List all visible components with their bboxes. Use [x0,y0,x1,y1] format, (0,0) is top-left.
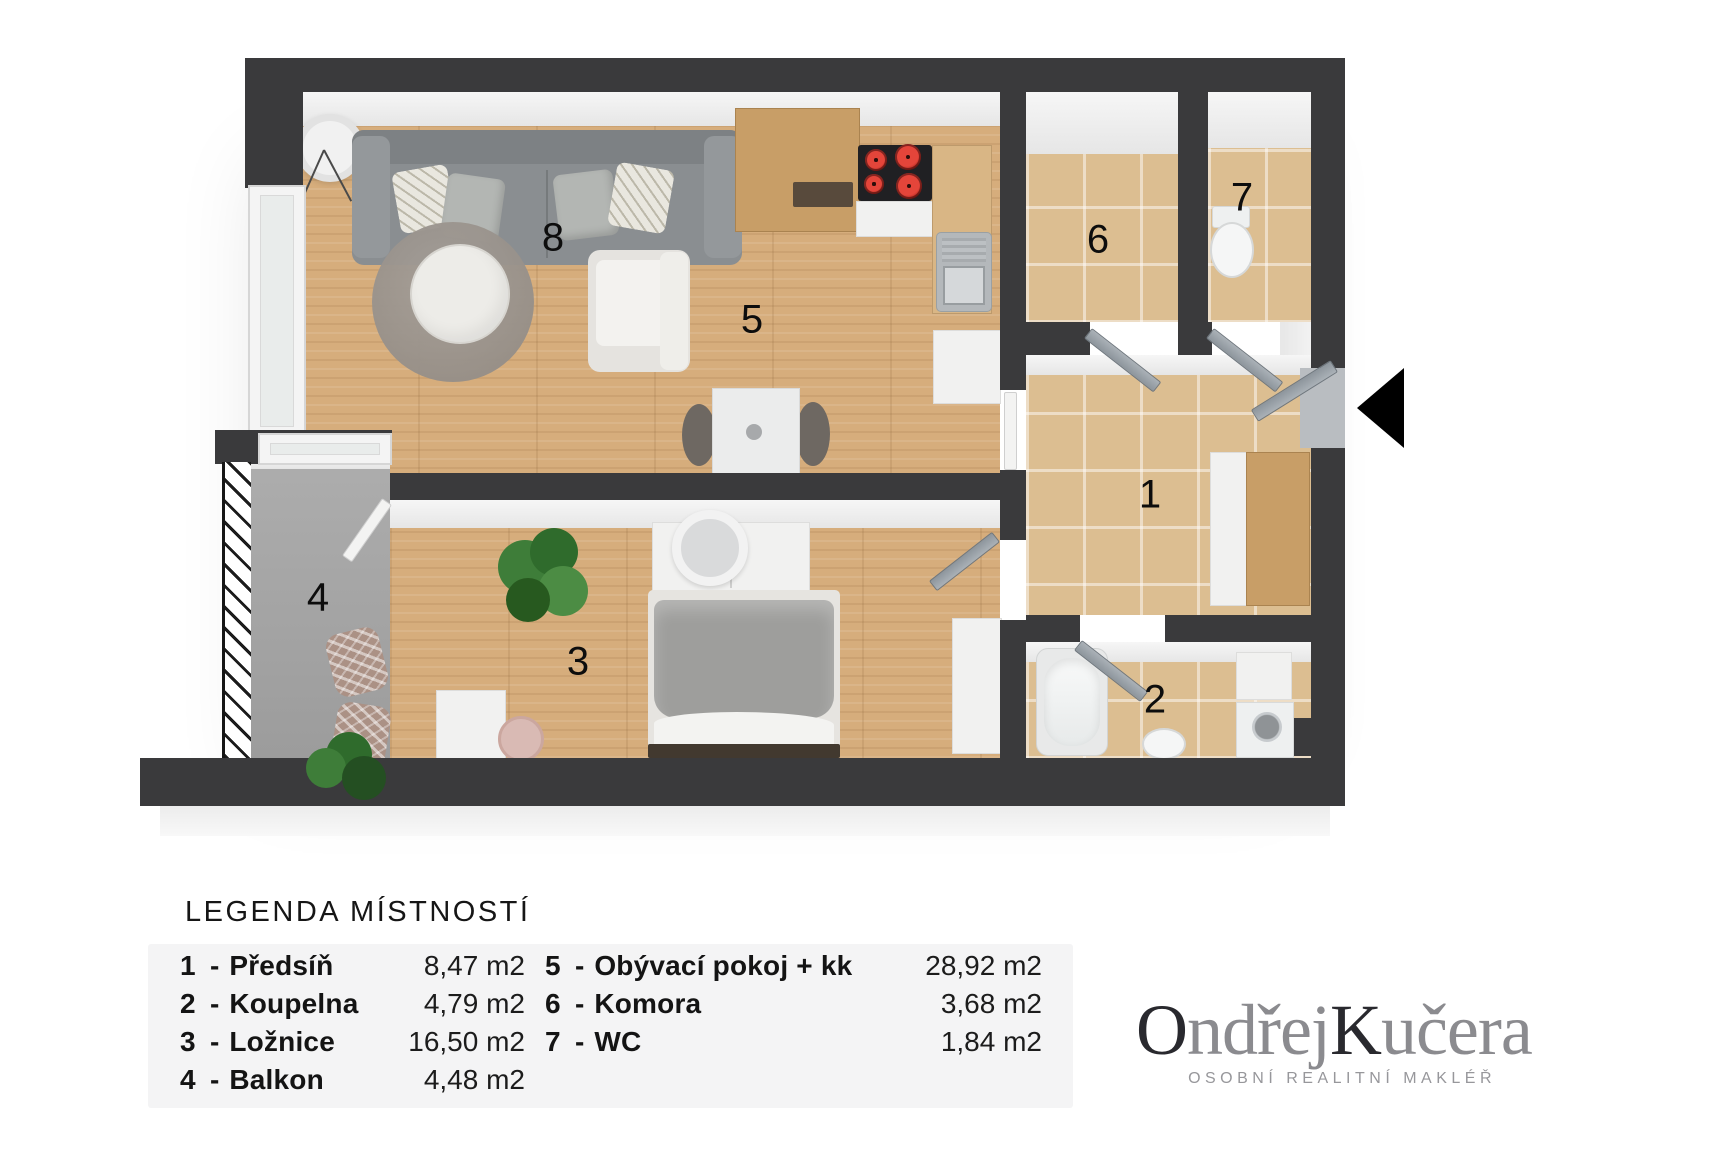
room-label-wc: 7 [1231,176,1253,221]
legend-separator: - [210,1026,219,1058]
legend-separator: - [575,950,584,982]
kitchen-base-cabinet [856,201,934,237]
legend-room-name: Komora [594,988,701,1020]
legend-room-number: 7 [545,1026,565,1058]
window-glass [270,443,380,455]
room-label-sofa: 8 [542,216,564,261]
wall-storage-hall-a [1026,322,1090,355]
plant-foliage [506,578,550,622]
wall-face [1026,92,1178,154]
legend-room-name: WC [594,1026,641,1058]
desk-chair [498,716,544,762]
wall-face [1208,92,1311,148]
wall-living-bedroom [390,473,1002,500]
legend-room-name: Obývací pokoj + kk [594,950,852,982]
legend-room-area: 8,47 m2 [424,950,525,982]
legend-separator: - [575,1026,584,1058]
legend-room-name: Předsíň [229,950,333,982]
room-label-hallway: 1 [1139,473,1161,518]
dining-chair [796,402,830,466]
bathroom-toilet [1142,728,1186,760]
legend-room-number: 2 [180,988,200,1020]
plant-foliage [342,756,386,800]
legend-row: 4 - Balkon 4,48 m2 [180,1064,525,1102]
legend-room-area: 28,92 m2 [925,950,1042,982]
wall-storage-wc [1178,92,1208,322]
legend-room-name: Ložnice [229,1026,335,1058]
legend-room-name: Koupelna [229,988,358,1020]
table-vase [746,424,762,440]
legend-room-number: 5 [545,950,565,982]
legend-room-number: 1 [180,950,200,982]
wall-hall-bath-a [1026,615,1080,642]
sink-drainboard [942,238,986,262]
legend-separator: - [210,988,219,1020]
brand-name-initial: K [1330,990,1381,1070]
living-cabinet [933,330,1001,404]
balcony-plant [306,732,402,804]
cooktop-burner [895,144,921,170]
brand-name-initial: O [1136,990,1187,1070]
sofa-armrest [352,136,390,258]
coffee-table [410,244,510,344]
brand-name: OndřejKučera [1136,994,1496,1066]
kitchen-tall-cabinet [735,108,860,232]
brand-name-rest: ndřej [1187,990,1330,1070]
bed-duvet [654,600,834,718]
legend-row: 1 - Předsíň 8,47 m2 [180,950,525,988]
legend-row: 3 - Ložnice 16,50 m2 [180,1026,525,1064]
room-label-living-room: 5 [741,298,763,343]
brand-logo: OndřejKučera OSOBNÍ REALITNÍ MAKLÉŘ [1136,994,1496,1088]
washing-machine [1236,702,1294,758]
cooktop-burner [865,149,887,171]
oven [793,182,853,207]
legend-room-area: 4,48 m2 [424,1064,525,1096]
kitchen-sink [936,232,992,312]
legend-row: 2 - Koupelna 4,79 m2 [180,988,525,1026]
legend-separator: - [575,988,584,1020]
brand-tagline: OSOBNÍ REALITNÍ MAKLÉŘ [1136,1070,1496,1088]
hallway-wardrobe-top [1246,452,1310,606]
building-base [160,806,1330,836]
round-mirror [672,510,748,586]
room-label-bedroom: 3 [567,640,589,685]
sofa-pillow [607,161,675,234]
wall-core-upper [1000,92,1026,390]
floorplan-page: 1 2 3 4 5 6 7 8 LEGENDA MÍSTNOSTÍ 1 - Př… [0,0,1732,1157]
balcony-railing [222,462,251,758]
wall-right-upper [1311,92,1345,368]
cooktop-burner [864,174,884,194]
living-room-window [248,185,306,437]
bed-headboard [648,744,840,758]
wall-right-lower [1311,448,1345,758]
balcony-window [258,433,392,465]
bedroom-wardrobe [952,618,1002,754]
entrance-arrow-icon [1357,368,1404,448]
legend-row: 6 - Komora 3,68 m2 [545,988,1042,1026]
cooktop-burner [896,173,922,199]
sofa-backrest [352,130,742,164]
room-label-storage: 6 [1087,218,1109,263]
wall-left-top [245,58,303,188]
room-label-balcony: 4 [307,576,329,621]
bathroom-cabinet [1236,652,1292,700]
dining-chair [682,404,716,466]
legend-title: LEGENDA MÍSTNOSTÍ [185,896,530,929]
wall-core-lower [1000,620,1026,758]
legend-row: 5 - Obývací pokoj + kk 28,92 m2 [545,950,1042,988]
living-room-door [1004,392,1017,470]
legend-column-1: 1 - Předsíň 8,47 m2 2 - Koupelna 4,79 m2… [180,950,525,1102]
brand-name-rest: učera [1381,990,1532,1070]
legend-room-number: 6 [545,988,565,1020]
legend-room-area: 16,50 m2 [408,1026,525,1058]
window-glass [260,195,294,427]
armchair-cushion [596,260,668,346]
wc-toilet-bowl [1210,222,1254,278]
legend-separator: - [210,950,219,982]
wall-top [245,58,1345,92]
utility-shaft [1294,718,1344,756]
legend-room-number: 3 [180,1026,200,1058]
legend-room-area: 3,68 m2 [941,988,1042,1020]
plant-foliage [306,748,346,788]
sink-basin [943,266,985,305]
legend-column-2: 5 - Obývací pokoj + kk 28,92 m2 6 - Komo… [545,950,1042,1064]
wall-hall-bath-b [1165,615,1311,642]
legend-room-number: 4 [180,1064,200,1096]
room-label-bathroom: 2 [1144,678,1166,723]
washing-machine-door [1252,712,1282,742]
armchair-backrest [660,252,688,370]
bedroom-plant [498,528,594,628]
legend-row: 7 - WC 1,84 m2 [545,1026,1042,1064]
wall-face [300,92,1000,126]
legend-room-name: Balkon [229,1064,324,1096]
bathtub-basin [1044,658,1100,746]
desk [436,690,506,760]
legend-room-area: 1,84 m2 [941,1026,1042,1058]
legend-separator: - [210,1064,219,1096]
legend-room-area: 4,79 m2 [424,988,525,1020]
wall-core-mid [1000,470,1026,540]
